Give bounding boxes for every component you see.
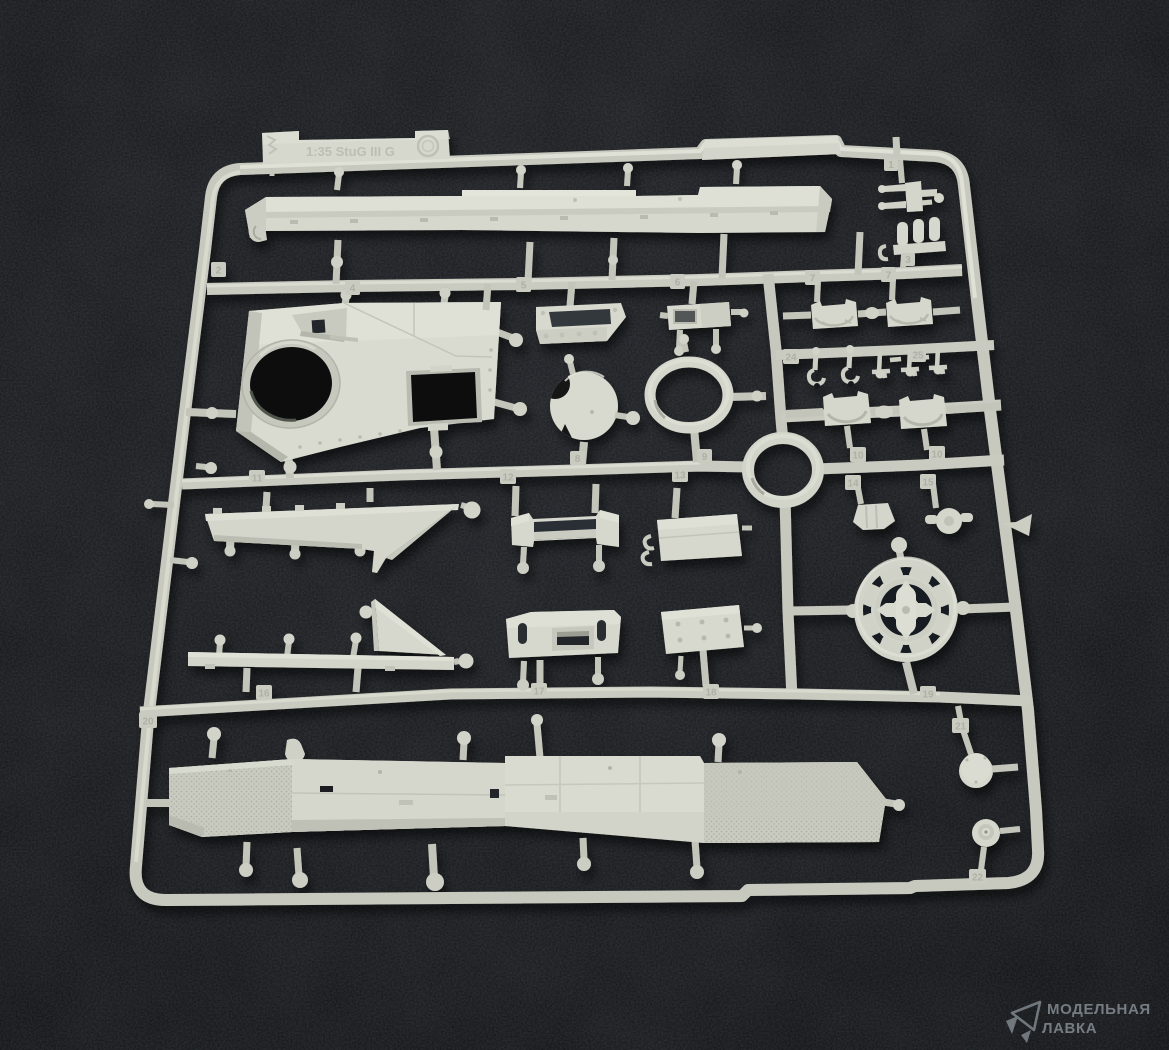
svg-text:1:35 StuG III G: 1:35 StuG III G	[306, 144, 395, 159]
svg-text:14: 14	[847, 479, 859, 490]
svg-text:25: 25	[912, 351, 924, 362]
svg-text:19: 19	[922, 690, 934, 701]
svg-text:13: 13	[674, 471, 686, 482]
svg-text:10: 10	[852, 451, 864, 462]
svg-text:8: 8	[575, 454, 581, 465]
svg-text:5: 5	[521, 281, 527, 292]
svg-text:9: 9	[702, 452, 708, 463]
svg-text:4: 4	[350, 284, 356, 295]
svg-text:2: 2	[216, 266, 222, 277]
svg-text:МОДЕЛЬНАЯ: МОДЕЛЬНАЯ	[1047, 1001, 1151, 1018]
svg-text:20: 20	[142, 717, 154, 728]
svg-text:12: 12	[502, 473, 514, 484]
svg-text:10: 10	[931, 450, 943, 461]
svg-text:6: 6	[675, 278, 681, 289]
svg-text:24: 24	[785, 353, 797, 364]
svg-text:1: 1	[888, 160, 894, 171]
svg-text:21: 21	[955, 722, 967, 733]
svg-text:16: 16	[258, 689, 270, 700]
svg-text:ЛАВКА: ЛАВКА	[1042, 1020, 1097, 1037]
svg-text:18: 18	[705, 688, 717, 699]
svg-text:11: 11	[252, 474, 263, 485]
svg-text:15: 15	[922, 478, 934, 489]
svg-text:7: 7	[810, 274, 816, 285]
svg-text:3: 3	[905, 255, 911, 266]
svg-text:22: 22	[972, 873, 984, 884]
svg-text:17: 17	[533, 687, 545, 698]
svg-text:7: 7	[886, 271, 892, 282]
